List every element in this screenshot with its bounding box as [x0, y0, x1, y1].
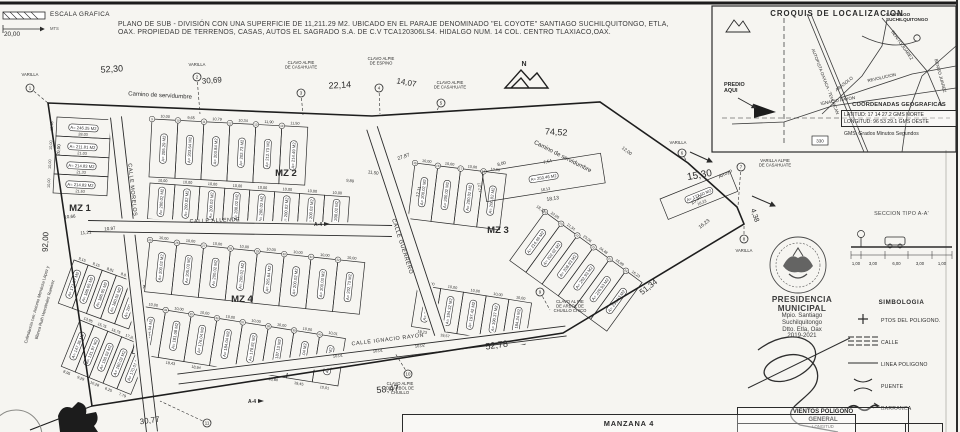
svg-text:10,00: 10,00: [233, 184, 243, 189]
svg-text:10,00: 10,00: [148, 302, 158, 307]
svg-text:10,00: 10,00: [282, 187, 292, 192]
svg-text:3,00: 3,00: [869, 261, 878, 266]
svg-text:10: 10: [406, 372, 411, 377]
svg-text:18,43: 18,43: [165, 361, 175, 366]
svg-text:10,66: 10,66: [64, 213, 76, 219]
svg-text:10,00: 10,00: [158, 179, 168, 184]
stamp-org-line1: PRESIDENCIA: [752, 295, 852, 304]
plan-title: PLANO DE SUB - DIVISIÓN CON UNA SUPERFIC…: [118, 21, 703, 36]
svg-text:9,89: 9,89: [346, 177, 355, 183]
stamp-sub4: 2019-2021: [752, 333, 852, 340]
svg-text:9,65: 9,65: [187, 116, 195, 120]
svg-text:11,50: 11,50: [290, 121, 299, 125]
svg-text:VARILLA: VARILLA: [670, 140, 687, 145]
svg-text:VARILLA: VARILLA: [736, 248, 753, 253]
svg-text:51,34: 51,34: [638, 277, 660, 297]
svg-text:10,97: 10,97: [104, 225, 116, 231]
svg-text:DE CASAHUATE: DE CASAHUATE: [285, 65, 317, 70]
svg-text:10,00: 10,00: [251, 319, 261, 324]
svg-text:28,03: 28,03: [78, 132, 88, 136]
svg-text:CHUILLO CHICO: CHUILLO CHICO: [554, 308, 588, 313]
coordinates-title: COORDENADAS GEOGRAFICAS: [843, 102, 955, 108]
subdivision-map: A= 246.25 M228,0313,98A= 211.81 M221,031…: [0, 0, 960, 432]
svg-text:74,52: 74,52: [545, 126, 568, 137]
gms-note: GMS: Grados Minutos Segundos: [844, 131, 919, 137]
municipal-seal-eagle: [763, 234, 833, 296]
svg-text:DE ESPINO: DE ESPINO: [370, 61, 394, 66]
north-arrow-icon: N: [505, 61, 548, 88]
svg-text:10,00: 10,00: [302, 327, 312, 332]
svg-text:10,00: 10,00: [239, 244, 249, 249]
tree-icon: [858, 231, 865, 248]
plan-title-line1: PLANO DE SUB - DIVISIÓN CON UNA SUPERFIC…: [118, 21, 703, 29]
svg-text:18,13: 18,13: [546, 195, 559, 203]
svg-text:VARILLA: VARILLA: [22, 72, 39, 77]
svg-text:10,00: 10,00: [174, 306, 184, 311]
svg-text:10,00: 10,00: [159, 236, 169, 241]
svg-text:10,00: 10,00: [200, 310, 210, 315]
svg-text:10,00: 10,00: [470, 288, 480, 293]
svg-text:16,23: 16,23: [631, 270, 641, 279]
svg-text:10,00: 10,00: [183, 180, 193, 185]
svg-text:16,23: 16,23: [698, 218, 712, 231]
legend-label: LINEA POLIGONO: [881, 362, 928, 368]
bridge-icon: [845, 376, 881, 399]
road-section-panel: SECCION TIPO A-A' 1,003,006,003,001,00: [845, 211, 958, 276]
svg-text:22,14: 22,14: [328, 79, 351, 90]
street-lines-icon: [845, 334, 881, 353]
scale-label: ESCALA GRAFICA: [50, 11, 110, 18]
svg-text:12,00: 12,00: [621, 145, 633, 156]
legend-panel: SIMBOLOGIA PTOS DEL POLIGONO. CALLE LINE…: [845, 299, 958, 420]
svg-text:52,30: 52,30: [100, 63, 123, 75]
svg-text:10,00: 10,00: [422, 159, 432, 164]
legend-label: CALLE: [881, 340, 898, 346]
svg-text:10,00: 10,00: [266, 247, 276, 252]
scale-value: 20,00: [4, 31, 20, 38]
svg-text:22,00: 22,00: [550, 211, 560, 220]
svg-text:24,48: 24,48: [598, 246, 608, 255]
svg-text:8,95: 8,95: [63, 370, 71, 376]
legend-item-puente: PUENTE: [845, 376, 958, 398]
svg-text:11,50: 11,50: [367, 169, 379, 176]
svg-text:DE CASAHUATE: DE CASAHUATE: [759, 163, 791, 168]
svg-text:10,00: 10,00: [160, 114, 170, 118]
svg-text:10,01: 10,01: [319, 385, 329, 390]
svg-text:6,00: 6,00: [892, 261, 901, 266]
svg-text:52,78: 52,78: [485, 339, 509, 352]
town-line2: SUCHILQUITONGO: [886, 17, 928, 22]
predio-aqui-label: PREDIO AQUI: [724, 82, 745, 94]
svg-text:8,00: 8,00: [497, 160, 507, 167]
svg-text:10,00: 10,00: [48, 159, 52, 169]
svg-text:13,95: 13,95: [83, 316, 93, 323]
lot-block: A= 200.02 M210,0025A= 205.03 M210,0026A=…: [142, 235, 366, 315]
scanned-subdivision-plan: A= 246.25 M228,0313,98A= 211.81 M221,031…: [0, 0, 960, 432]
svg-text:10: 10: [176, 118, 180, 122]
road-section-drawing: 1,003,006,003,001,00: [845, 217, 958, 271]
corner-seal: [0, 402, 98, 432]
svg-text:14: 14: [280, 124, 284, 128]
svg-text:10,00: 10,00: [213, 242, 223, 247]
svg-text:10,00: 10,00: [467, 164, 477, 169]
svg-text:27,87: 27,87: [397, 152, 411, 162]
svg-text:21,03: 21,03: [77, 151, 87, 155]
svg-text:A-4: A-4: [248, 399, 256, 405]
croquis-drawing: 330AUTOPISTA OAXACA - TEHUACANABASOLOREV…: [712, 6, 956, 152]
svg-text:11: 11: [205, 421, 210, 426]
svg-text:VARILLA: VARILLA: [189, 62, 206, 67]
svg-text:30,69: 30,69: [202, 75, 223, 85]
svg-text:10,00: 10,00: [493, 292, 503, 297]
svg-text:Camino de servidumbre: Camino de servidumbre: [128, 91, 193, 100]
svg-text:10,34: 10,34: [238, 119, 248, 123]
svg-text:9,29: 9,29: [76, 375, 84, 381]
scale-units: MTS: [50, 26, 59, 31]
svg-text:7,79: 7,79: [118, 392, 126, 398]
svg-text:11,90: 11,90: [264, 120, 273, 124]
legend-item-ptos: PTOS DEL POLIGONO.: [845, 310, 958, 332]
svg-text:A-4: A-4: [314, 222, 322, 228]
latitude-value: LATITUD: 17 14 27.2 GMS NORTE: [844, 112, 954, 119]
svg-text:4,38: 4,38: [749, 208, 760, 223]
legend-label: PTOS DEL POLIGONO.: [881, 318, 941, 324]
svg-text:10,00: 10,00: [293, 250, 303, 255]
svg-text:14,07: 14,07: [396, 76, 418, 88]
svg-text:21,63: 21,63: [75, 189, 85, 193]
svg-text:10,00: 10,00: [516, 296, 526, 301]
polygon-line-icon: [845, 356, 881, 375]
manzana-title: MANZANA 4: [403, 415, 855, 428]
svg-text:10,00: 10,00: [49, 140, 53, 150]
svg-text:3,00: 3,00: [916, 261, 925, 266]
svg-text:11: 11: [202, 120, 206, 124]
svg-text:DE CASAHUATE: DE CASAHUATE: [434, 85, 466, 90]
legend-item-linea: LINEA POLIGONO: [845, 354, 958, 376]
svg-text:REVOLUCION: REVOLUCION: [867, 72, 896, 83]
svg-text:MZ 2: MZ 2: [275, 168, 297, 179]
svg-text:N: N: [521, 61, 526, 68]
svg-text:12: 12: [228, 121, 232, 125]
svg-text:Arroyo: Arroyo: [718, 168, 734, 180]
svg-text:10,00: 10,00: [258, 186, 268, 191]
svg-text:10,00: 10,00: [208, 182, 218, 187]
svg-text:A= 262.93 M2: A= 262.93 M2: [574, 265, 594, 290]
svg-text:20,00: 20,00: [56, 144, 62, 156]
svg-text:A= 226.93 M2: A= 226.93 M2: [591, 277, 611, 302]
svg-text:21,33: 21,33: [76, 170, 86, 174]
svg-text:A= 208.93 M2: A= 208.93 M2: [558, 253, 578, 278]
svg-text:A= 214.46 M2: A= 214.46 M2: [526, 230, 546, 255]
legend-title: SIMBOLOGIA: [845, 299, 958, 306]
svg-text:11,21: 11,21: [80, 229, 92, 235]
coordinates-box: LATITUD: 17 14 27.2 GMS NORTE LONGITUD: …: [841, 110, 957, 127]
svg-text:19,45: 19,45: [294, 381, 304, 386]
town-label: SANTIAGO SUCHILQUITONGO: [886, 12, 928, 22]
svg-text:21,91: 21,91: [566, 223, 576, 232]
svg-text:A= 202.02 M2: A= 202.02 M2: [542, 241, 562, 266]
svg-text:10,00: 10,00: [445, 162, 455, 167]
svg-text:10,01: 10,01: [328, 331, 338, 336]
svg-text:10,00: 10,00: [225, 315, 235, 320]
svg-text:15,75: 15,75: [111, 328, 121, 335]
svg-text:15,75: 15,75: [97, 322, 107, 329]
svg-text:10,00: 10,00: [47, 178, 51, 188]
svg-text:10,00: 10,00: [320, 253, 330, 258]
scale-bar: [3, 12, 45, 33]
polygon-point-cross-icon: [845, 312, 881, 331]
svg-text:10,00: 10,00: [186, 239, 196, 244]
svg-text:Camino de servidumbre: Camino de servidumbre: [533, 140, 593, 175]
manzana-table: MANZANA 4: [402, 414, 856, 432]
svg-text:MZ 3: MZ 3: [487, 225, 509, 236]
svg-text:1,00: 1,00: [852, 261, 861, 266]
svg-text:10,00: 10,00: [347, 256, 357, 261]
svg-text:6,25: 6,25: [104, 386, 112, 392]
svg-text:10,79: 10,79: [212, 117, 222, 121]
svg-text:MZ 1: MZ 1: [69, 203, 91, 214]
municipal-stamp-text: PRESIDENCIA MUNICIPAL Mpio. Santiago Suc…: [752, 295, 852, 340]
svg-text:MZ 4: MZ 4: [231, 294, 253, 305]
plan-title-line2: OAX. PROPIEDAD DE TERRENOS, CASAS, AUTOS…: [118, 29, 703, 37]
small-cut-box: [905, 423, 943, 432]
svg-text:CHUILLO: CHUILLO: [391, 390, 410, 395]
longitude-value: LONGITUD: 96 53 29.1 GMS OESTE: [844, 119, 954, 126]
svg-text:10,00: 10,00: [307, 189, 317, 194]
svg-text:13: 13: [254, 122, 258, 126]
svg-text:1,00: 1,00: [938, 261, 947, 266]
legend-label: PUENTE: [881, 384, 903, 390]
svg-text:7,54: 7,54: [543, 158, 553, 165]
svg-text:10,00: 10,00: [277, 323, 287, 328]
svg-text:92,00: 92,00: [41, 231, 51, 252]
svg-text:23,06: 23,06: [582, 235, 592, 244]
svg-text:16,89: 16,89: [615, 258, 625, 267]
predio-line2: AQUI: [724, 88, 745, 94]
svg-text:BENITO JUAREZ: BENITO JUAREZ: [934, 58, 948, 93]
svg-text:10,00: 10,00: [448, 285, 458, 290]
legend-item-calle: CALLE: [845, 332, 958, 354]
svg-text:330: 330: [816, 139, 824, 144]
svg-text:18,13: 18,13: [541, 187, 551, 192]
svg-text:19,57: 19,57: [440, 333, 450, 338]
svg-text:15,30: 15,30: [686, 168, 713, 183]
svg-text:10,00: 10,00: [332, 191, 342, 196]
